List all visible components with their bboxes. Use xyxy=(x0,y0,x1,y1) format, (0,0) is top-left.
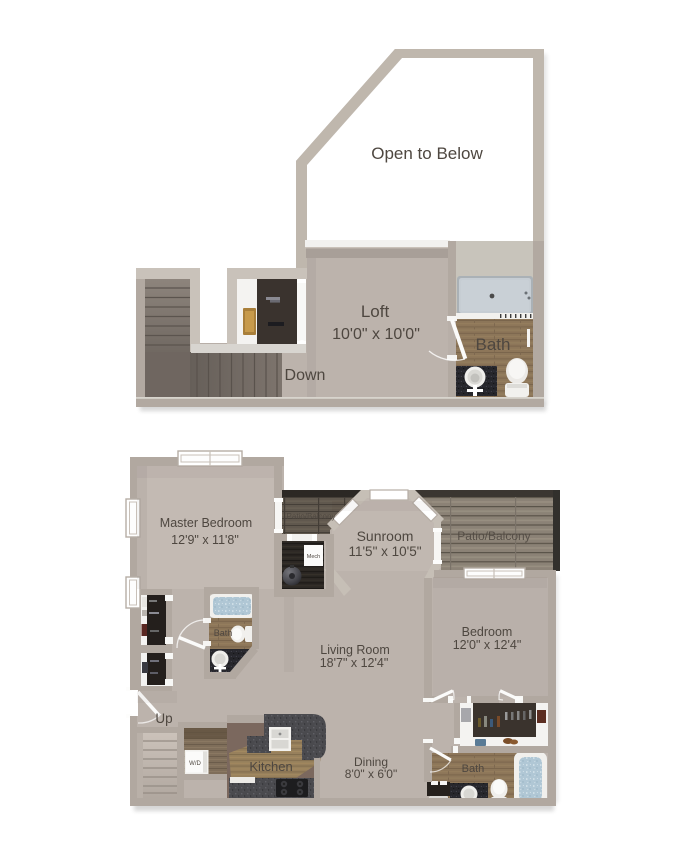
svg-text:Up: Up xyxy=(155,711,172,726)
svg-text:Bath: Bath xyxy=(476,335,511,354)
svg-text:Kitchen: Kitchen xyxy=(249,759,292,774)
svg-text:W/D: W/D xyxy=(189,761,201,767)
svg-text:18'7" x 12'4": 18'7" x 12'4" xyxy=(320,656,389,670)
svg-text:Mech: Mech xyxy=(307,554,320,560)
svg-text:Patio/Balcony: Patio/Balcony xyxy=(457,529,530,543)
svg-text:10'0" x 10'0": 10'0" x 10'0" xyxy=(332,326,420,343)
svg-text:Bath: Bath xyxy=(462,763,485,775)
svg-text:11'5" x 10'5": 11'5" x 10'5" xyxy=(348,544,421,559)
svg-text:Open to Below: Open to Below xyxy=(371,144,483,163)
svg-text:Living Room: Living Room xyxy=(320,643,389,657)
svg-text:12'0" x 12'4": 12'0" x 12'4" xyxy=(453,638,522,652)
svg-text:8'0" x 6'0": 8'0" x 6'0" xyxy=(345,767,397,781)
svg-text:Bath: Bath xyxy=(214,628,233,638)
svg-text:Sunroom: Sunroom xyxy=(357,528,414,544)
svg-text:12'9" x 11'8": 12'9" x 11'8" xyxy=(171,533,239,547)
svg-text:Bedroom: Bedroom xyxy=(462,625,513,639)
svg-text:Patio/Balcony: Patio/Balcony xyxy=(287,512,336,521)
svg-text:Master Bedroom: Master Bedroom xyxy=(160,516,252,530)
svg-text:Down: Down xyxy=(285,367,326,384)
svg-text:Loft: Loft xyxy=(361,302,390,321)
